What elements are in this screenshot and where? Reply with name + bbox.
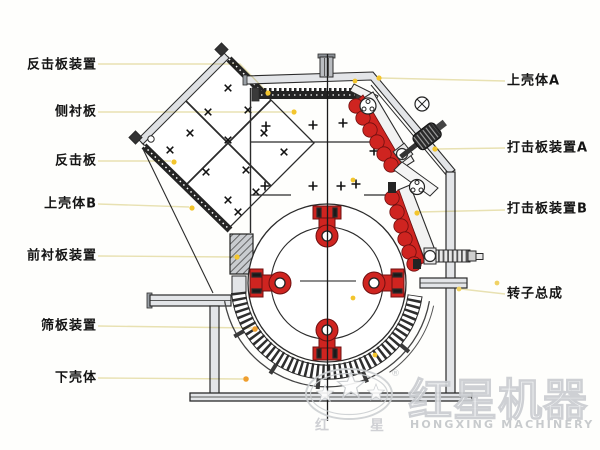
- label-upper-shell-a: 上壳体A: [507, 75, 560, 88]
- hinge-bolt-b: [410, 180, 425, 195]
- registered-mark: ®: [391, 369, 400, 379]
- label-side-liner: 侧衬板: [55, 106, 97, 119]
- label-screen-plate-assembly: 筛板装置: [41, 320, 97, 333]
- label-impact-plate-assembly: 反击板装置: [27, 59, 97, 72]
- seal-char-right: 星: [370, 418, 384, 434]
- label-rotor-assembly: 转子总成: [507, 288, 563, 301]
- label-front-liner-assembly: 前衬板装置: [27, 250, 97, 263]
- label-blow-bar-assembly-a: 打击板装置A: [507, 142, 588, 155]
- hinge-bolt-a: [360, 98, 376, 114]
- seal-char-left: 红: [315, 417, 329, 434]
- label-impact-plate: 反击板: [55, 155, 97, 168]
- adjust-rod-b: [424, 248, 483, 264]
- watermark-brand-en: HONGXING MACHINERY: [410, 418, 594, 431]
- label-blow-bar-assembly-b: 打击板装置B: [507, 203, 588, 216]
- label-upper-shell-b: 上壳体B: [44, 198, 97, 211]
- label-lower-shell: 下壳体: [55, 372, 97, 385]
- crusher-assembly: [129, 43, 483, 421]
- impact-crusher-structure-diagram: ® 红 星 红星机器 HONGXING MACHINERY 反击板装置 侧衬板 …: [0, 0, 600, 450]
- left-leg: [210, 306, 219, 394]
